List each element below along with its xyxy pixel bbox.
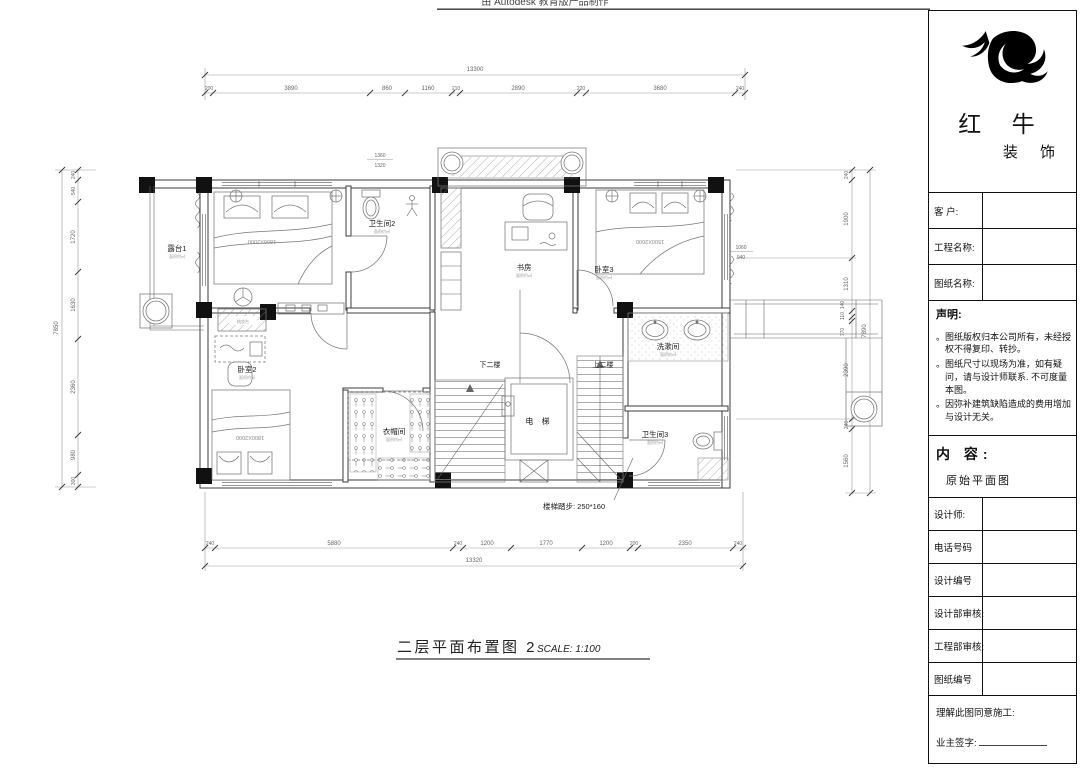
svg-text:940: 940 [737,255,746,261]
bathroom3: 卫生间3 面积约㎡ [629,429,728,480]
owner-sign-label: 业主签字: [936,738,977,749]
statement-block: 声明: 。 图纸版权归本公司所有，未经授权不得复印、转抄。 。 图纸尺寸以现场为… [929,301,1076,436]
terrace: 露台1 面积约㎡ [140,186,204,330]
hanger-rail [378,458,430,480]
room-label-bath3: 卫生间3 [642,429,669,439]
field-client: 客 户: [929,193,1076,229]
shower-figure-icon [406,196,418,217]
svg-text:240: 240 [206,541,215,547]
bed-icon: 1500X2000 [596,190,704,274]
field-client-label: 客 户: [929,193,983,228]
svg-text:1060: 1060 [735,245,746,251]
company-logo: 红 牛 装 饰 [929,11,1076,193]
content-heading: 内 容: [936,444,1070,464]
svg-text:200: 200 [205,86,214,92]
field-phone: 电话号码 [929,531,1076,564]
field-client-value [983,193,1076,228]
agree-text: 理解此图同意施工: [936,705,1070,719]
svg-text:5880: 5880 [327,541,341,547]
bed-icon: 1800X2000 [214,192,332,284]
room-label-terrace: 露台1 [167,243,186,253]
door-arc [629,440,665,476]
field-drawing-value [983,265,1076,300]
room-label-bath2: 卫生间2 [369,218,396,228]
label-up-stairs: 上二楼 [593,360,614,369]
field-design-no: 设计编号 [929,564,1076,597]
svg-text:1630: 1630 [71,298,77,312]
svg-text:1720: 1720 [71,230,77,244]
wash-area: 洗漱间 面积约㎡ [628,313,728,361]
svg-text:面积约㎡: 面积约㎡ [660,351,676,357]
svg-text:240: 240 [734,541,743,547]
svg-text:2360: 2360 [71,380,77,394]
svg-text:1360: 1360 [374,153,385,159]
bed-icon: 1800X2000 [212,390,290,480]
wall-lamp-icon [230,190,242,202]
field-project-value [983,229,1076,264]
room-label-cloak: 衣帽间 [383,426,406,436]
dim-chain-right: 7890 240 1900 1310 140 110 770 2390 240 … [736,167,876,496]
flue-pier [441,188,461,310]
svg-text:1200: 1200 [480,541,494,547]
statement-item: 。 图纸尺寸以现场为准，如有疑问，请与设计师联系. 不可度量本图。 [936,358,1071,396]
wall-lamp-icon [694,190,706,202]
svg-text:200: 200 [630,541,639,547]
field-project-label: 工程名称: [929,229,983,264]
svg-text:1800X2000: 1800X2000 [248,238,276,244]
svg-text:770: 770 [840,328,846,337]
svg-text:1320: 1320 [374,163,385,169]
elevator: 电 梯 [502,290,573,460]
floor-plan: 由 Autodesk 教育版产品制作 13300 200 3890 860 11… [0,0,930,776]
field-eng-review: 工程部审核: [929,630,1076,663]
statement-item: 。 图纸版权归本公司所有，未经授权不得复印、转抄。 [936,331,1071,357]
svg-text:240: 240 [844,171,850,180]
door-arc [351,236,387,272]
bathroom2: 卫生间2 面积约㎡ [351,190,418,272]
svg-text:面积约㎡: 面积约㎡ [374,228,390,234]
desk-icon [505,222,567,250]
watermark-text: 由 Autodesk 教育版产品制作 [481,0,608,8]
svg-text:140: 140 [840,301,846,310]
fan-icon [234,288,252,306]
svg-text:7850: 7850 [54,321,60,335]
sink-icon [684,320,710,340]
svg-text:860: 860 [382,86,393,92]
svg-text:540: 540 [71,187,77,196]
svg-text:13300: 13300 [467,67,484,73]
svg-text:240: 240 [736,86,745,92]
bull-logo-icon [953,21,1053,103]
plant-squiggle [220,345,244,351]
cloakroom: 衣帽间 面积约㎡ [348,391,430,480]
owner-sign-row: 业主签字: [936,735,1070,749]
right-balcony [730,300,882,426]
brand-name: 红 牛 [929,105,1076,139]
svg-text:1310: 1310 [844,277,850,291]
svg-text:楼梯踏步: 250*160: 楼梯踏步: 250*160 [543,501,605,511]
content-block: 内 容: 原始平面图 [929,436,1076,498]
chair-icon [523,194,553,220]
field-designer: 设计师: [929,498,1076,531]
field-project: 工程名称: [929,229,1076,265]
room-label-study: 书房 [517,262,532,272]
bedroom3: 1500X2000 卧室3 面积约㎡ [577,190,706,306]
bedroom1: 1800X2000 [214,190,342,306]
wall-lamp-icon [330,190,342,202]
svg-text:2390: 2390 [844,363,850,377]
dim-chain-top: 13300 200 3890 860 1160 210 2890 220 368… [202,67,748,100]
dim-stack-right: 1060 940 [729,245,753,261]
svg-text:7890: 7890 [862,324,868,338]
svg-text:1800X2000: 1800X2000 [236,434,264,440]
svg-text:210: 210 [452,86,461,92]
landing-box [520,460,548,482]
svg-text:面积约㎡: 面积约㎡ [647,439,663,445]
door-arc [520,290,570,383]
field-drawing-label: 图纸名称: [929,265,983,300]
signature-line [979,735,1047,746]
brand-subname: 装 饰 [929,141,1076,162]
shower-pan [698,458,728,480]
svg-text:300: 300 [71,477,77,486]
room-label-wash: 洗漱间 [657,341,680,351]
dim-stack-top: 1360 1320 [367,153,393,169]
room-label-bed3: 卧室3 [594,264,613,274]
daybed-outline [215,336,265,362]
plan-title: 二层平面布置图 2 [397,639,537,656]
sink-icon [642,320,668,340]
svg-text:1500X2000: 1500X2000 [636,238,664,244]
bedroom2: 梳妆台 卧室2 面积约㎡ 1800X2000 [212,303,347,480]
room-label-bed2: 卧室2 [237,364,256,374]
svg-text:240: 240 [454,541,463,547]
svg-text:1160: 1160 [422,86,436,92]
toilet-icon [362,190,380,219]
svg-text:1200: 1200 [599,541,613,547]
label-down-stairs: 下二楼 [480,360,501,369]
signature-block: 理解此图同意施工: 业主签字: [929,696,1076,763]
field-drawing: 图纸名称: [929,265,1076,301]
stair-up [577,356,623,482]
svg-text:3680: 3680 [653,86,667,92]
svg-text:220: 220 [577,86,586,92]
svg-text:1770: 1770 [539,541,553,547]
dresser: 梳妆台 [218,309,266,331]
svg-text:面积约㎡: 面积约㎡ [386,436,402,442]
drawing-sheet: 由 Autodesk 教育版产品制作 13300 200 3890 860 11… [0,0,1080,776]
drawing-title: 二层平面布置图 2 SCALE: 1:100 [396,639,650,659]
statement-item: 。 因弥补建筑缺陷造成的费用增加与设计无关。 [936,398,1071,424]
hanger-rail [410,394,430,452]
svg-text:110: 110 [840,312,846,320]
svg-text:2350: 2350 [678,541,692,547]
toilet-icon [693,432,722,450]
door-arc [311,313,347,349]
plan-scale: SCALE: 1:100 [537,644,601,655]
study: 书房 面积约㎡ [505,194,567,278]
dim-chain-left: 7850 240 540 1720 1630 2360 980 300 [54,167,96,490]
dim-chain-bottom: 13320 240 5880 240 1200 1770 1200 200 23… [202,492,746,571]
hanger-rail [350,394,376,472]
field-drawing-no: 图纸编号 [929,663,1076,696]
stair-down [435,380,505,482]
wall-lamp-icon [606,190,618,202]
svg-text:面积约㎡: 面积约㎡ [239,374,255,380]
svg-text:980: 980 [71,449,77,460]
svg-text:240: 240 [844,421,850,430]
svg-text:1560: 1560 [844,454,850,468]
statement-heading: 声明: [936,308,1071,324]
svg-text:240: 240 [71,171,77,180]
svg-text:面积约㎡: 面积约㎡ [516,272,532,278]
svg-text:13320: 13320 [466,558,483,564]
svg-text:梳妆台: 梳妆台 [237,318,249,324]
field-design-review: 设计部审核: [929,597,1076,630]
svg-text:面积约㎡: 面积约㎡ [169,253,185,259]
title-block: 红 牛 装 饰 客 户: 工程名称: 图纸名称: 声明: 。 图纸版权归本公司所… [928,10,1077,764]
svg-text:1900: 1900 [844,212,850,226]
content-value: 原始平面图 [936,472,1070,488]
elevator-label: 电 梯 [525,416,552,426]
svg-text:3890: 3890 [284,86,298,92]
svg-text:面积约㎡: 面积约㎡ [596,274,612,280]
svg-text:2890: 2890 [511,86,525,92]
